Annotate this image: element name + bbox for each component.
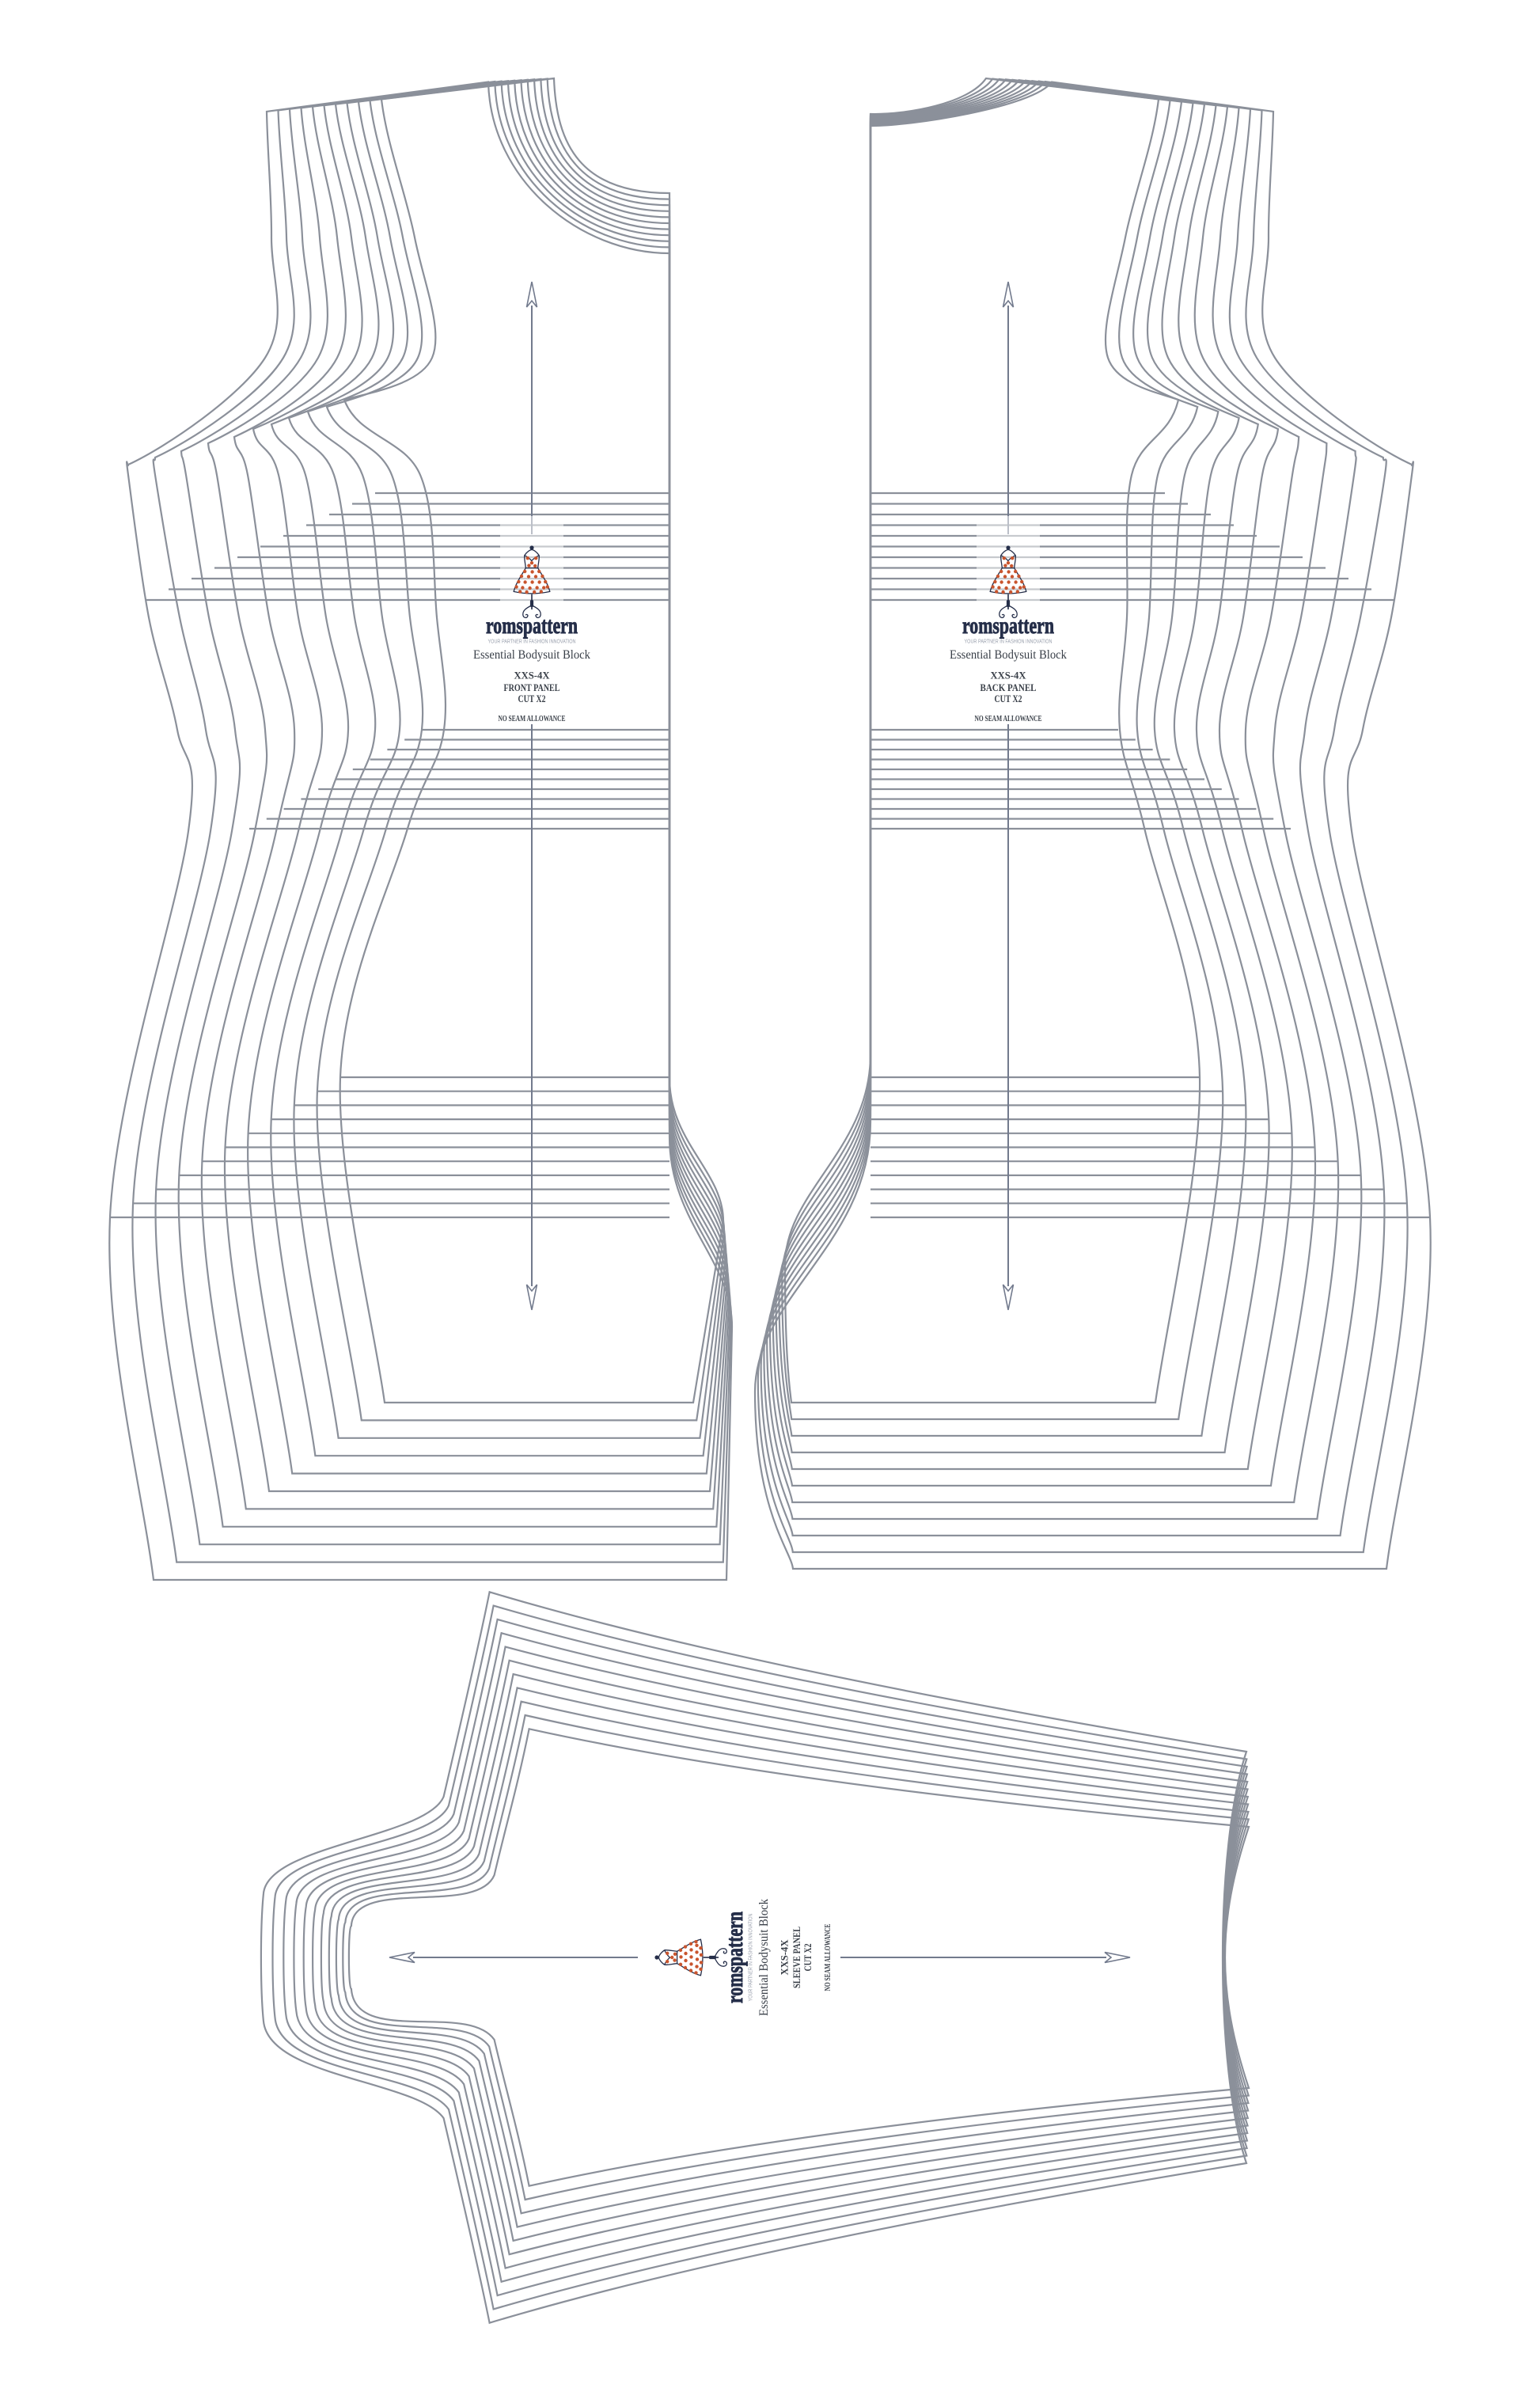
svg-text:romspattern: romspattern bbox=[486, 613, 578, 639]
svg-text:CUT X2: CUT X2 bbox=[518, 693, 546, 704]
svg-text:XXS-4X: XXS-4X bbox=[991, 670, 1027, 681]
svg-text:CUT X2: CUT X2 bbox=[995, 693, 1022, 704]
svg-text:Essential Bodysuit Block: Essential Bodysuit Block bbox=[950, 648, 1067, 662]
svg-text:FRONT PANEL: FRONT PANEL bbox=[504, 682, 560, 693]
svg-text:YOUR PARTNER IN FASHION INNOVA: YOUR PARTNER IN FASHION INNOVATION bbox=[965, 638, 1053, 645]
svg-text:romspattern: romspattern bbox=[962, 613, 1054, 639]
svg-text:YOUR PARTNER IN FASHION INNOVA: YOUR PARTNER IN FASHION INNOVATION bbox=[488, 638, 576, 645]
svg-text:XXS-4X: XXS-4X bbox=[514, 670, 551, 681]
svg-text:NO SEAM ALLOWANCE: NO SEAM ALLOWANCE bbox=[975, 714, 1042, 723]
svg-text:BACK PANEL: BACK PANEL bbox=[981, 682, 1037, 693]
svg-text:romspattern: romspattern bbox=[722, 1912, 748, 2003]
svg-text:NO SEAM ALLOWANCE: NO SEAM ALLOWANCE bbox=[499, 714, 566, 723]
svg-text:XXS-4X: XXS-4X bbox=[779, 1939, 791, 1976]
svg-text:YOUR PARTNER IN FASHION INNOVA: YOUR PARTNER IN FASHION INNOVATION bbox=[747, 1914, 754, 2002]
svg-text:NO SEAM ALLOWANCE: NO SEAM ALLOWANCE bbox=[823, 1924, 833, 1991]
svg-text:Essential Bodysuit Block: Essential Bodysuit Block bbox=[757, 1899, 771, 2016]
svg-text:CUT X2: CUT X2 bbox=[802, 1944, 814, 1972]
svg-text:Essential Bodysuit Block: Essential Bodysuit Block bbox=[473, 648, 590, 662]
svg-text:SLEEVE PANEL: SLEEVE PANEL bbox=[791, 1927, 802, 1988]
